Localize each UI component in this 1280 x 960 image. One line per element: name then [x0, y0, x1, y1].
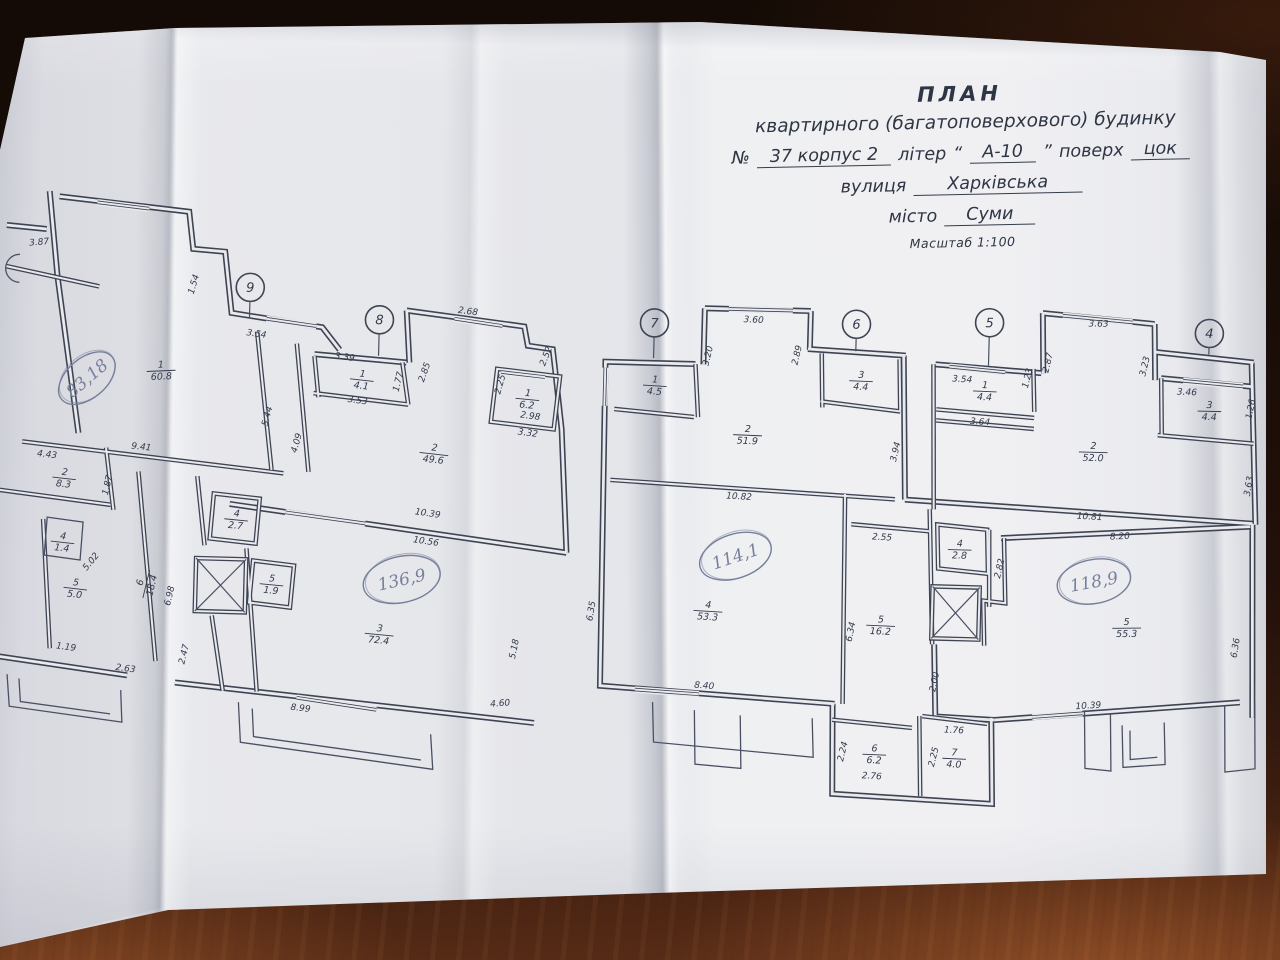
room-number-area-label: 251.9 — [733, 423, 763, 447]
elevator-shaft — [195, 558, 246, 612]
svg-text:4.0: 4.0 — [946, 759, 962, 771]
svg-text:1: 1 — [652, 374, 659, 385]
svg-text:1: 1 — [158, 359, 165, 370]
dimension-label: 2.00 — [928, 671, 942, 693]
svg-text:1: 1 — [982, 380, 989, 391]
svg-text:114,1: 114,1 — [709, 540, 762, 574]
room-number-area-label: 453.3 — [693, 599, 723, 624]
dimension-label: 2.89 — [791, 344, 805, 366]
room-number-area-label: 252.0 — [1079, 441, 1108, 465]
dimension-label: 5.18 — [508, 638, 522, 660]
dimension-label: 3.32 — [517, 427, 538, 440]
svg-text:2: 2 — [1090, 441, 1096, 452]
dimension-label: 3.63 — [1088, 320, 1108, 330]
dimension-label: 2.47 — [177, 643, 191, 665]
paper-sheet: ПЛАН квартирного (багатоповерхового) буд… — [0, 0, 1280, 960]
axis-marker: 6 — [842, 310, 871, 352]
dimension-label: 3.54 — [952, 374, 973, 385]
room-number-area-label: 249.6 — [418, 441, 449, 467]
svg-text:4: 4 — [233, 508, 240, 520]
svg-text:5: 5 — [985, 316, 994, 331]
handwritten-total-area: 136,9 — [358, 546, 445, 610]
dimension-label: 1.76 — [944, 726, 965, 737]
svg-text:3: 3 — [376, 623, 383, 635]
svg-text:4: 4 — [705, 600, 712, 611]
svg-text:1.4: 1.4 — [54, 542, 70, 555]
svg-text:2: 2 — [745, 424, 752, 435]
dimension-label: 2.85 — [417, 361, 433, 383]
dimension-label: 8.40 — [694, 681, 715, 693]
svg-text:49.6: 49.6 — [422, 454, 444, 467]
svg-text:2.8: 2.8 — [952, 550, 967, 561]
dimension-label: 3.53 — [347, 395, 368, 408]
dimension-label: 4.09 — [290, 432, 305, 454]
svg-text:4.4: 4.4 — [1201, 412, 1216, 423]
dimension-label: 1.26 — [1245, 398, 1259, 420]
dimension-label: 6.36 — [1230, 637, 1243, 659]
elevator-shafts-layer — [195, 558, 980, 640]
room-number-area-label: 14.4 — [972, 380, 997, 404]
dimension-label: 8.99 — [290, 703, 311, 715]
room-number-area-label: 66.2 — [862, 743, 887, 767]
room-number-area-label: 34.4 — [849, 369, 874, 393]
svg-text:51.9: 51.9 — [736, 435, 758, 447]
dimension-label: 3.46 — [1177, 387, 1198, 398]
svg-text:53.3: 53.3 — [697, 611, 719, 623]
axis-marker: 7 — [640, 309, 669, 359]
svg-text:5: 5 — [268, 573, 275, 585]
photo-of-floor-plan: { "title_block": { "heading": "ПЛАН", "s… — [0, 0, 1280, 960]
svg-text:118,9: 118,9 — [1068, 568, 1120, 597]
dimension-label: 6.34 — [845, 621, 859, 643]
svg-text:5: 5 — [878, 614, 885, 625]
room-number-area-label: 16.2 — [515, 387, 541, 412]
axis-marker: 5 — [974, 308, 1003, 366]
svg-text:1.9: 1.9 — [263, 585, 279, 597]
dimension-label: 6.98 — [163, 585, 177, 607]
dimension-label: 3.60 — [743, 315, 764, 326]
svg-text:4.4: 4.4 — [853, 382, 869, 394]
handwritten-total-area: 83,18 — [47, 340, 125, 415]
svg-text:1: 1 — [359, 369, 366, 381]
svg-text:6: 6 — [871, 743, 878, 754]
dimension-label: 10.81 — [1076, 512, 1102, 524]
svg-text:72.4: 72.4 — [368, 634, 390, 647]
room-number-area-label: 516.2 — [866, 614, 896, 638]
room-number-area-label: 51.9 — [259, 572, 285, 597]
room-number-area-label: 14.5 — [642, 374, 667, 398]
dimension-label: 1.54 — [187, 273, 202, 295]
elevator-shaft — [931, 586, 979, 639]
svg-text:2: 2 — [431, 442, 438, 454]
svg-text:5: 5 — [1124, 617, 1130, 628]
room-number-area-label: 34.4 — [1197, 400, 1221, 424]
dimension-label: 2.25 — [927, 746, 941, 768]
axis-marker: 8 — [365, 305, 394, 356]
svg-text:4: 4 — [1205, 327, 1214, 342]
room-number-area-label: 74.0 — [942, 747, 967, 771]
svg-text:8: 8 — [375, 313, 384, 328]
dimension-label: 10.56 — [412, 535, 439, 549]
svg-text:4: 4 — [59, 531, 66, 543]
room-number-area-label: 42.8 — [948, 538, 972, 562]
svg-text:7: 7 — [951, 747, 958, 758]
svg-text:8.3: 8.3 — [55, 478, 71, 491]
room-number-area-label: 372.4 — [364, 622, 395, 648]
svg-text:7: 7 — [650, 316, 659, 331]
dimension-label: 10.39 — [1075, 701, 1102, 713]
svg-text:136,9: 136,9 — [376, 565, 428, 595]
svg-text:6: 6 — [135, 578, 147, 586]
dimension-label: 10.82 — [726, 491, 753, 503]
svg-text:6: 6 — [852, 318, 861, 333]
svg-text:5.0: 5.0 — [66, 589, 82, 602]
floor-plan-drawing: 987654160.828.341.455.0618.442.751.9372.… — [0, 0, 1280, 960]
dimension-label: 5.44 — [260, 405, 275, 427]
dimension-label: 9.41 — [131, 441, 152, 453]
svg-text:2.7: 2.7 — [227, 520, 243, 532]
plan-root: 987654160.828.341.455.0618.442.751.9372.… — [0, 190, 1269, 811]
dimension-label: 3.39 — [334, 352, 355, 365]
svg-text:4.5: 4.5 — [647, 386, 663, 398]
room-number-area-label: 41.4 — [49, 530, 75, 556]
svg-text:4.1: 4.1 — [353, 380, 369, 393]
room-number-area-label: 160.8 — [146, 359, 176, 383]
svg-text:16.2: 16.2 — [870, 626, 892, 638]
svg-text:5: 5 — [72, 577, 79, 589]
dimension-label: 2.24 — [836, 740, 850, 762]
handwritten-total-area: 118,9 — [1053, 551, 1135, 610]
dimension-label: 3.54 — [246, 328, 268, 341]
dimension-label: 5.02 — [81, 551, 102, 573]
room-number-area-label: 42.7 — [223, 508, 249, 533]
svg-text:4.4: 4.4 — [977, 392, 993, 404]
dimension-label: 3.23 — [1138, 355, 1152, 377]
dimension-label: 3.64 — [970, 417, 991, 428]
dimension-label: 2.98 — [520, 410, 541, 423]
svg-text:6.2: 6.2 — [866, 755, 882, 767]
dimension-label: 8.20 — [1110, 532, 1131, 543]
svg-text:55.3: 55.3 — [1116, 629, 1137, 640]
room-number-area-label: 14.1 — [349, 368, 375, 394]
svg-text:52.0: 52.0 — [1082, 453, 1103, 465]
dimension-label: 3.94 — [889, 441, 903, 463]
dimension-label: 4.60 — [490, 698, 511, 710]
windows-layer — [84, 202, 1247, 732]
svg-text:3: 3 — [858, 370, 865, 381]
svg-text:2: 2 — [61, 467, 68, 479]
dimension-label: 2.76 — [861, 771, 882, 782]
svg-text:3: 3 — [1206, 400, 1212, 411]
room-number-area-label: 28.3 — [51, 466, 77, 492]
svg-text:4: 4 — [957, 538, 963, 549]
dimension-label: 3.87 — [29, 237, 50, 249]
handwritten-total-area: 114,1 — [693, 522, 778, 589]
dimension-label: 6.35 — [585, 600, 598, 622]
svg-text:60.8: 60.8 — [151, 371, 173, 383]
room-number-area-label: 55.0 — [62, 576, 88, 602]
dimension-label: 4.43 — [36, 449, 57, 461]
axis-marker: 4 — [1195, 319, 1224, 355]
dimension-label: 10.39 — [414, 507, 441, 521]
svg-text:9: 9 — [246, 281, 255, 296]
dimension-label: 1.19 — [55, 641, 76, 654]
svg-text:1: 1 — [524, 388, 531, 400]
room-number-area-label: 555.3 — [1112, 617, 1141, 640]
dimension-label: 2.55 — [872, 532, 893, 543]
